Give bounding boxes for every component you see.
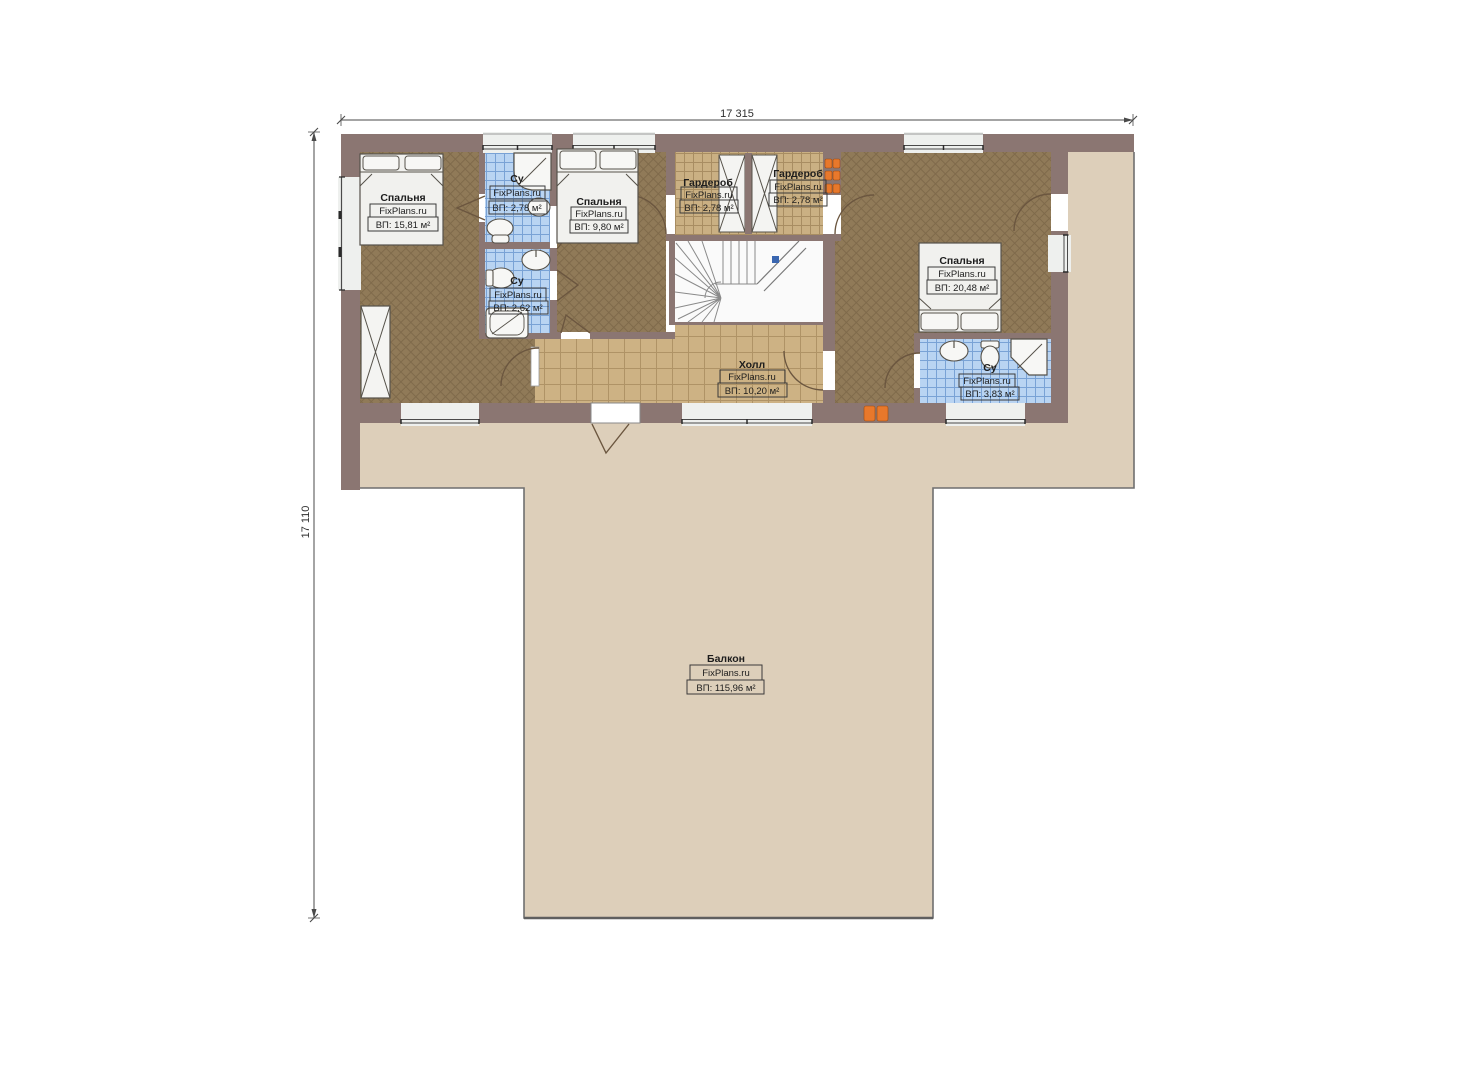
svg-text:Балкон: Балкон [707,653,745,665]
svg-text:Су: Су [510,173,524,185]
svg-text:Холл: Холл [739,359,765,371]
svg-text:FixPlans.ru: FixPlans.ru [963,376,1011,387]
svg-text:ВП: 3,83 м²: ВП: 3,83 м² [965,389,1014,400]
svg-text:ВП: 115,96 м²: ВП: 115,96 м² [696,683,755,694]
svg-text:FixPlans.ru: FixPlans.ru [493,188,541,199]
svg-text:Су: Су [510,275,524,287]
svg-text:ВП: 10,20 м²: ВП: 10,20 м² [725,386,780,397]
svg-text:ВП: 9,80 м²: ВП: 9,80 м² [574,222,623,233]
svg-text:Гардероб: Гардероб [773,168,823,180]
svg-text:FixPlans.ru: FixPlans.ru [685,190,733,201]
svg-text:Су: Су [983,362,997,374]
svg-text:FixPlans.ru: FixPlans.ru [575,209,623,220]
svg-text:ВП: 15,81 м²: ВП: 15,81 м² [376,220,431,231]
svg-text:Спальня: Спальня [380,192,425,204]
svg-text:ВП: 2,78 м²: ВП: 2,78 м² [773,195,822,206]
svg-text:Спальня: Спальня [939,255,984,267]
svg-text:ВП: 2,78 м²: ВП: 2,78 м² [684,203,733,214]
svg-text:FixPlans.ru: FixPlans.ru [774,182,822,193]
svg-text:17 110: 17 110 [300,506,312,539]
svg-text:FixPlans.ru: FixPlans.ru [938,269,986,280]
svg-text:ВП: 2,78 м²: ВП: 2,78 м² [492,203,541,214]
svg-text:FixPlans.ru: FixPlans.ru [702,668,750,679]
svg-text:FixPlans.ru: FixPlans.ru [728,372,776,383]
svg-text:Спальня: Спальня [576,196,621,208]
svg-text:ВП: 2,62 м²: ВП: 2,62 м² [493,303,542,314]
svg-text:FixPlans.ru: FixPlans.ru [379,206,427,217]
svg-text:17 315: 17 315 [720,108,754,120]
svg-text:ВП: 20,48 м²: ВП: 20,48 м² [935,283,990,294]
svg-text:FixPlans.ru: FixPlans.ru [494,290,542,301]
